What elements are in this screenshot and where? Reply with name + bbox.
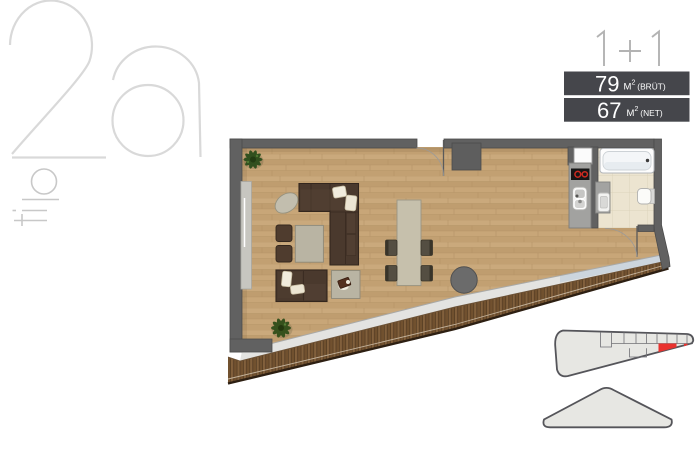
svg-text:2: 2 [632,80,636,87]
svg-text:2: 2 [635,106,639,113]
svg-text:(BRÜT): (BRÜT) [637,82,666,92]
svg-text:M: M [627,108,635,119]
svg-text:M: M [624,81,632,92]
svg-text:(NET): (NET) [640,108,663,118]
svg-text:79: 79 [595,72,619,97]
svg-text:67: 67 [597,98,621,123]
